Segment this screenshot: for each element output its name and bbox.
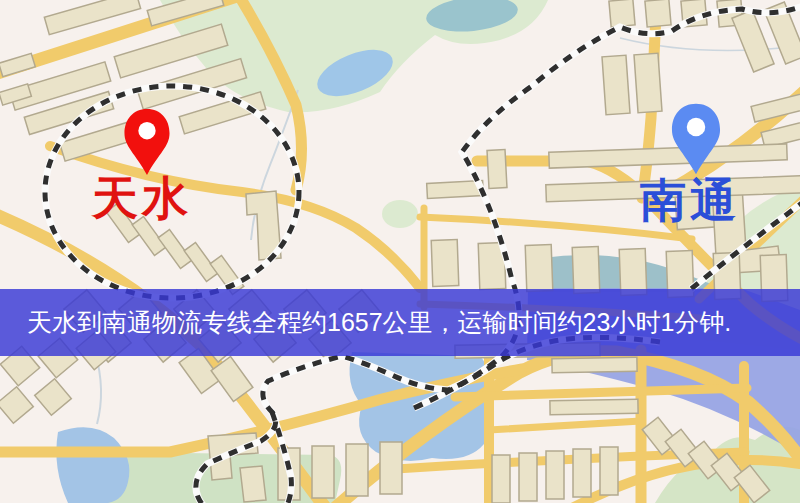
origin-pin[interactable]	[121, 106, 173, 178]
route-info-banner: 天水到南通物流专线全程约1657公里，运输时间约23小时1分钟.	[0, 289, 800, 356]
map-background	[0, 0, 800, 503]
destination-pin[interactable]	[668, 102, 724, 176]
map-pin-icon	[668, 102, 724, 176]
map-canvas[interactable]: 天水 南通 天水到南通物流专线全程约1657公里，运输时间约23小时1分钟.	[0, 0, 800, 503]
route-info-text: 天水到南通物流专线全程约1657公里，运输时间约23小时1分钟.	[0, 306, 731, 339]
origin-label: 天水	[92, 176, 192, 222]
map-pin-icon	[121, 106, 173, 178]
destination-label: 南通	[640, 178, 740, 224]
